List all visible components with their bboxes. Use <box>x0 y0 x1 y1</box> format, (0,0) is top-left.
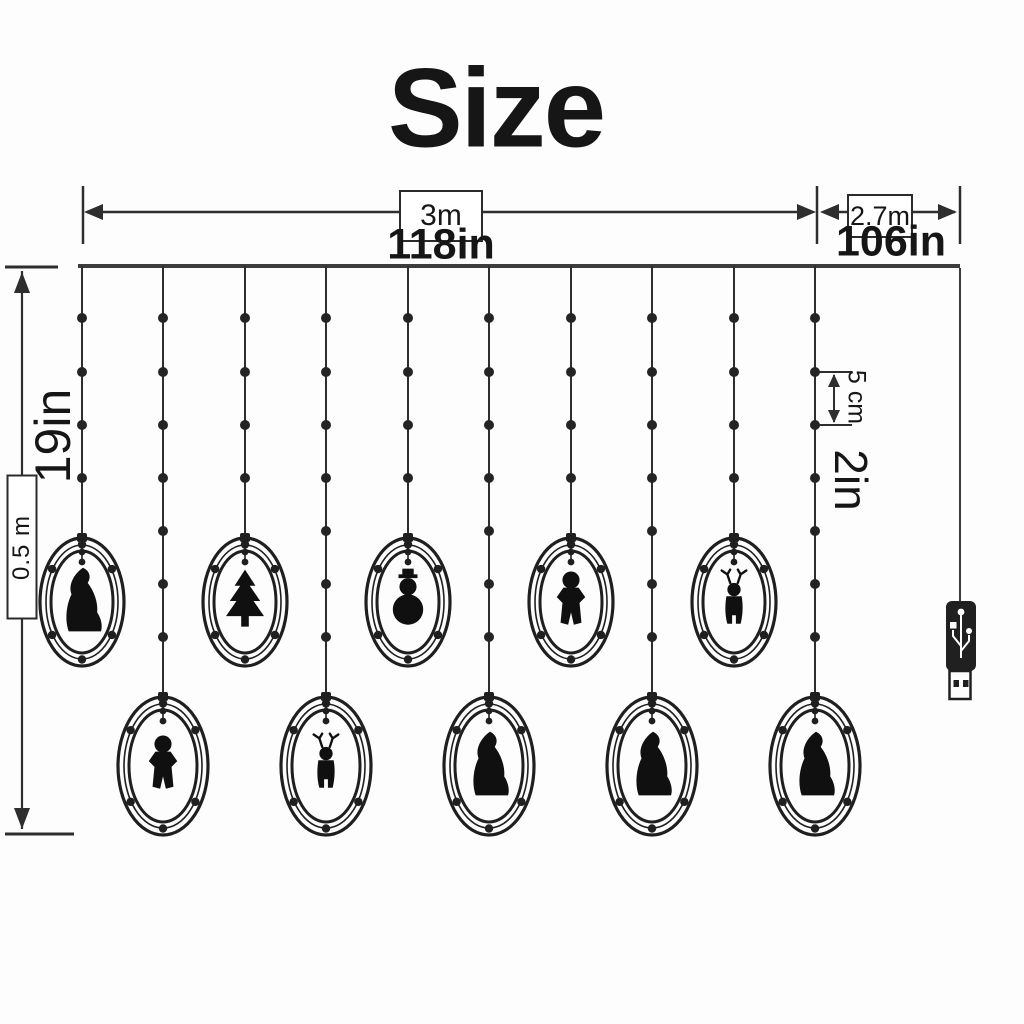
width-imperial-label: 118in <box>387 221 495 270</box>
light-string-9 <box>692 266 776 666</box>
ring-bead <box>778 798 786 806</box>
ring-bead <box>211 565 219 573</box>
usb-plug-icon <box>946 601 976 699</box>
string-bead <box>158 579 168 589</box>
string-bead <box>729 473 739 483</box>
string-bead <box>647 579 657 589</box>
string-bead <box>566 367 576 377</box>
string-bead <box>647 526 657 536</box>
ring-bead <box>517 726 525 734</box>
figure-santa-icon <box>473 732 508 796</box>
ring-ornament <box>529 533 613 666</box>
ring-ornament <box>118 692 208 835</box>
string-bead <box>484 579 494 589</box>
size-diagram-canvas: Size 3m 118in 2.7m 106in 19in 0.5 m 5 cm… <box>0 0 1024 1024</box>
string-bead <box>810 367 820 377</box>
string-bead <box>240 367 250 377</box>
ring-bead <box>374 565 382 573</box>
string-bead <box>321 420 331 430</box>
ring-ornament <box>281 692 371 835</box>
arrowhead-down <box>828 410 840 423</box>
light-string-10 <box>770 266 860 835</box>
figure-gingerbread-icon <box>149 736 178 789</box>
string-bead <box>403 473 413 483</box>
light-string-8 <box>607 266 697 835</box>
figure-gingerbread-icon <box>557 572 586 625</box>
string-bead <box>566 473 576 483</box>
ring-ornament <box>444 692 534 835</box>
ring-bead <box>452 798 460 806</box>
ring-ornament <box>692 533 776 666</box>
string-bead <box>484 473 494 483</box>
arrowhead-right <box>797 204 816 220</box>
ring-bead <box>126 726 134 734</box>
figure-santa-icon <box>636 732 671 796</box>
ring-bead <box>78 655 86 663</box>
figure-tree-icon <box>226 570 264 627</box>
ring-bead <box>700 565 708 573</box>
ring-bead <box>211 631 219 639</box>
string-bead <box>647 313 657 323</box>
string-bead <box>158 632 168 642</box>
ring-bead <box>680 726 688 734</box>
ring-bead <box>271 565 279 573</box>
light-string-5 <box>366 266 450 666</box>
ring-bead <box>778 726 786 734</box>
string-bead <box>240 420 250 430</box>
ring-bead <box>191 726 199 734</box>
ring-ornament <box>770 692 860 835</box>
string-bead <box>240 313 250 323</box>
ring-bead <box>108 565 116 573</box>
light-string-6 <box>444 266 534 835</box>
string-bead <box>321 526 331 536</box>
usb-pin <box>954 680 960 687</box>
string-bead <box>647 367 657 377</box>
ring-bead <box>289 798 297 806</box>
ring-bead <box>811 824 819 832</box>
string-bead <box>77 313 87 323</box>
drop-metric-box: 0.5 m <box>7 475 38 620</box>
ring-bead <box>680 798 688 806</box>
string-bead <box>484 420 494 430</box>
string-bead <box>647 632 657 642</box>
string-bead <box>321 313 331 323</box>
ring-bead <box>843 726 851 734</box>
ring-bead <box>537 565 545 573</box>
string-bead <box>158 367 168 377</box>
ring-ornament <box>366 533 450 666</box>
string-bead <box>647 473 657 483</box>
ring-bead <box>322 824 330 832</box>
spacing-metric-label: 5 cm <box>842 370 871 424</box>
ring-bead <box>354 798 362 806</box>
ring-bead <box>354 726 362 734</box>
arrowhead-up <box>828 374 840 387</box>
ring-bead <box>271 631 279 639</box>
ring-bead <box>485 824 493 832</box>
lead-imperial-label: 106in <box>836 218 946 267</box>
ring-bead <box>615 798 623 806</box>
ring-bead <box>700 631 708 639</box>
string-bead <box>158 313 168 323</box>
usb-pin <box>963 680 969 687</box>
ring-bead <box>517 798 525 806</box>
string-bead <box>810 473 820 483</box>
page-title: Size <box>388 44 604 173</box>
ring-ornament <box>203 533 287 666</box>
string-bead <box>158 526 168 536</box>
ring-bead <box>108 631 116 639</box>
string-bead <box>810 526 820 536</box>
string-bead <box>77 367 87 377</box>
string-bead <box>158 473 168 483</box>
string-bead <box>810 313 820 323</box>
arrowhead-up <box>14 272 30 293</box>
string-bead <box>321 579 331 589</box>
light-string-4 <box>281 266 371 835</box>
string-bead <box>321 473 331 483</box>
string-bead <box>484 632 494 642</box>
figure-reindeer-icon <box>314 734 339 788</box>
ring-bead <box>597 631 605 639</box>
string-bead <box>321 632 331 642</box>
ring-bead <box>597 565 605 573</box>
ring-bead <box>289 726 297 734</box>
light-string-3 <box>203 266 287 666</box>
figure-snowman-icon <box>393 569 423 625</box>
string-bead <box>810 420 820 430</box>
string-bead <box>729 367 739 377</box>
figure-reindeer-icon <box>722 570 747 624</box>
ring-bead <box>537 631 545 639</box>
arrowhead-left <box>84 204 103 220</box>
string-bead <box>810 632 820 642</box>
string-bead <box>729 313 739 323</box>
ring-bead <box>567 655 575 663</box>
ring-bead <box>159 824 167 832</box>
light-strings <box>40 266 860 835</box>
ring-bead <box>452 726 460 734</box>
string-bead <box>810 579 820 589</box>
string-bead <box>647 420 657 430</box>
ring-bead <box>648 824 656 832</box>
ring-bead <box>48 631 56 639</box>
figure-santa-icon <box>799 732 834 796</box>
ring-bead <box>404 655 412 663</box>
string-bead <box>240 473 250 483</box>
string-bead <box>403 367 413 377</box>
string-bead <box>403 420 413 430</box>
ring-bead <box>191 798 199 806</box>
ring-bead <box>730 655 738 663</box>
ring-bead <box>615 726 623 734</box>
arrowhead-down <box>14 808 30 829</box>
string-bead <box>403 313 413 323</box>
figure-santa-icon <box>66 568 101 632</box>
string-bead <box>729 420 739 430</box>
ring-bead <box>760 565 768 573</box>
ring-bead <box>434 631 442 639</box>
spacing-imperial-label: 2in <box>824 449 878 510</box>
ring-bead <box>434 565 442 573</box>
drop-metric-label: 0.5 m <box>8 514 36 579</box>
ring-ornament <box>40 533 124 666</box>
string-bead <box>484 526 494 536</box>
light-string-2 <box>118 266 208 835</box>
string-bead <box>566 420 576 430</box>
ring-bead <box>241 655 249 663</box>
string-bead <box>484 367 494 377</box>
ring-bead <box>126 798 134 806</box>
ring-bead <box>760 631 768 639</box>
drop-imperial-label: 19in <box>24 389 82 484</box>
string-bead <box>321 367 331 377</box>
ring-bead <box>374 631 382 639</box>
string-bead <box>566 313 576 323</box>
ring-ornament <box>607 692 697 835</box>
ring-bead <box>48 565 56 573</box>
light-string-7 <box>529 266 613 666</box>
string-bead <box>158 420 168 430</box>
string-bead <box>484 313 494 323</box>
ring-bead <box>843 798 851 806</box>
